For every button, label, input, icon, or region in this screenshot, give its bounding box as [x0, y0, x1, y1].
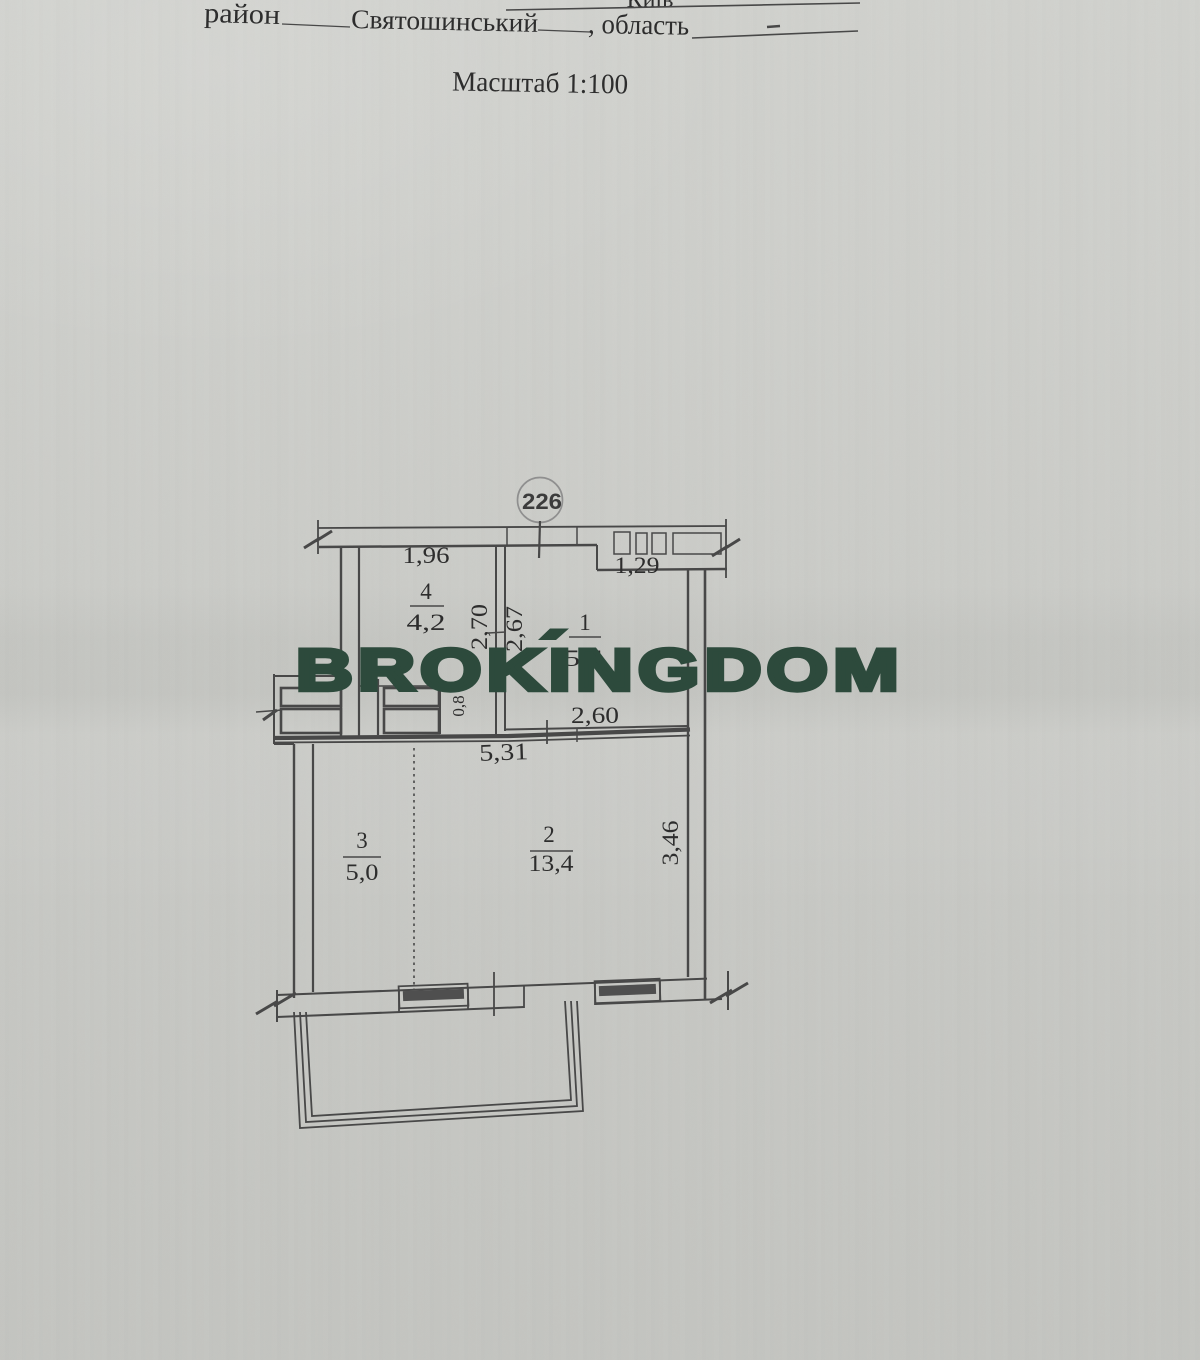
- svg-text:226: 226: [522, 489, 562, 514]
- svg-text:1,96: 1,96: [403, 543, 450, 568]
- svg-text:1,29: 1,29: [615, 553, 660, 578]
- svg-text:1: 1: [579, 610, 591, 635]
- svg-text:4,2: 4,2: [407, 610, 446, 635]
- svg-text:3,46: 3,46: [658, 821, 683, 866]
- svg-text:2: 2: [543, 822, 555, 847]
- svg-text:5,0: 5,0: [346, 860, 379, 885]
- svg-text:район: район: [204, 0, 281, 31]
- svg-text:13,4: 13,4: [529, 851, 575, 876]
- svg-text:4: 4: [420, 579, 432, 604]
- svg-text:, область: , область: [588, 9, 690, 42]
- svg-text:Масштаб 1:100: Масштаб 1:100: [452, 66, 629, 100]
- svg-text:5,31: 5,31: [479, 739, 529, 767]
- svg-text:BROKINGDOM: BROKINGDOM: [296, 638, 904, 703]
- svg-text:3: 3: [356, 828, 368, 853]
- svg-text:2,60: 2,60: [571, 703, 619, 728]
- svg-text:Святошинський: Святошинський: [351, 4, 539, 38]
